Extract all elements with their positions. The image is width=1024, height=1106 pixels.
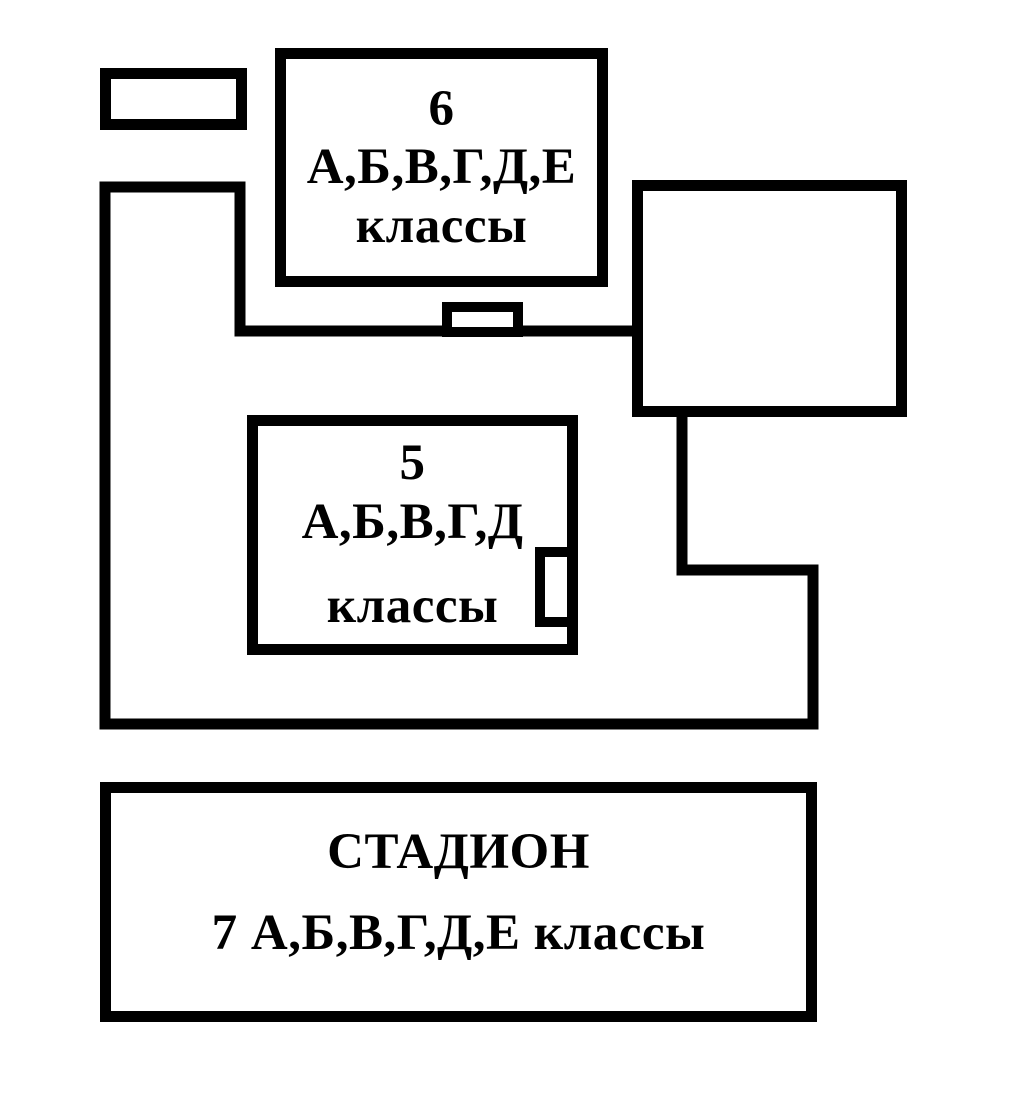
right-building <box>638 186 902 412</box>
diagram-canvas: 6 А,Б,В,Г,Д,Е классы 5 А,Б,В,Г,Д классы … <box>0 0 1024 1106</box>
school-map-lines <box>0 0 1024 1106</box>
stadium-area <box>106 788 812 1017</box>
small-building-top-left <box>106 74 242 125</box>
door-grade5-building <box>540 552 572 622</box>
grade6-building <box>281 54 603 282</box>
gate-on-connector <box>447 307 518 332</box>
grade5-building <box>253 421 573 650</box>
